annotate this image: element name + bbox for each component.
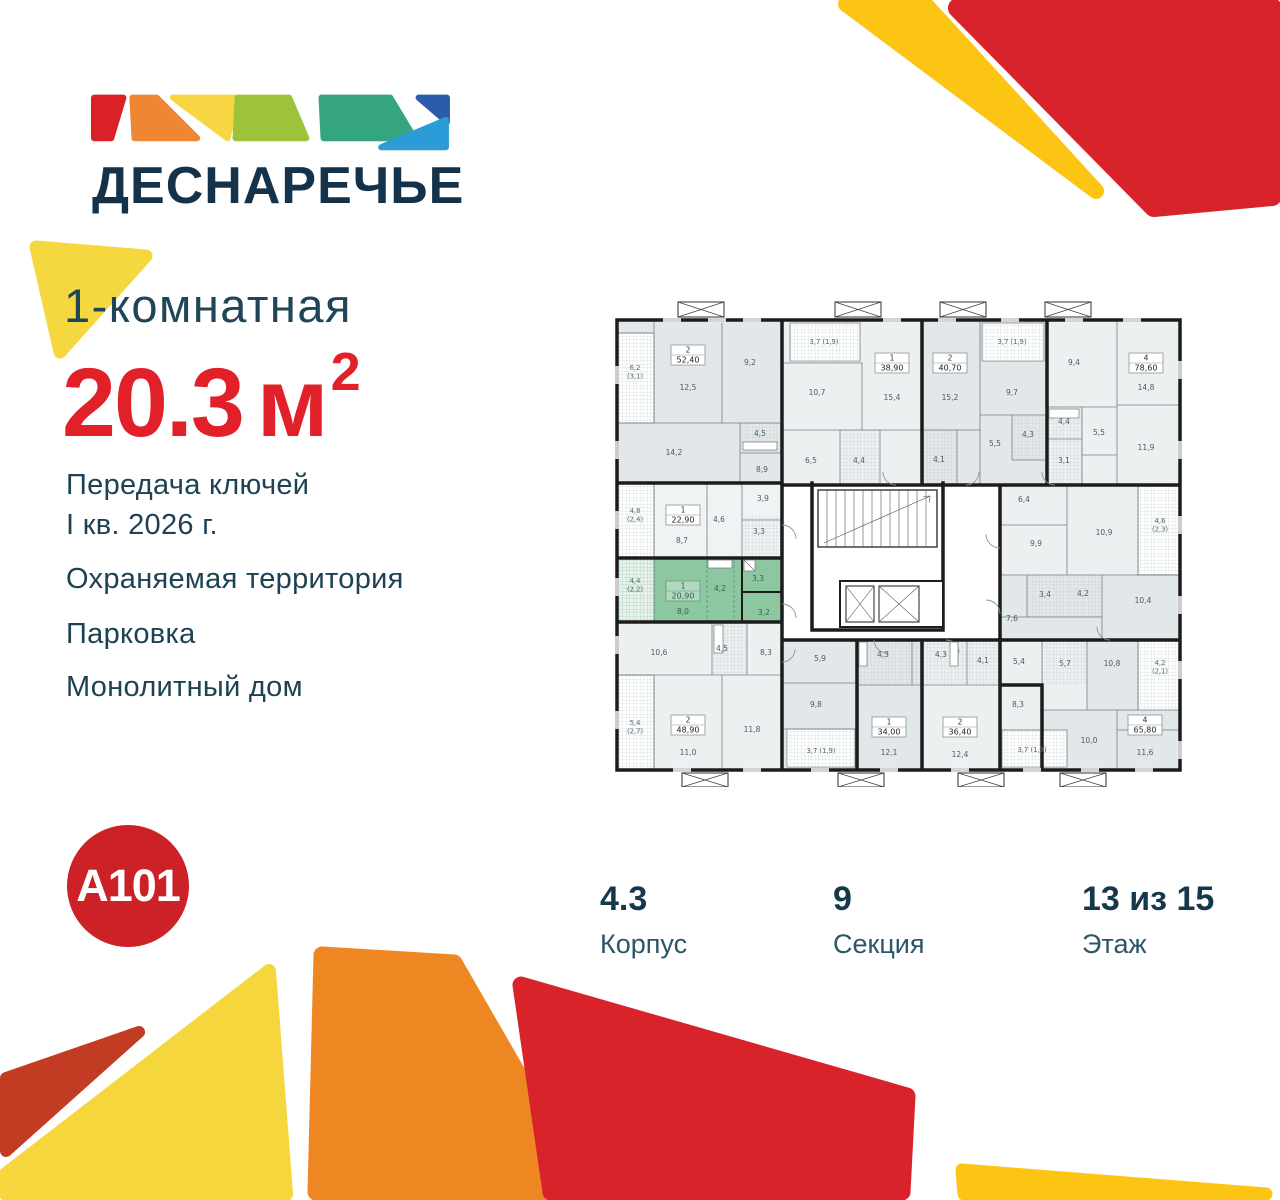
- room-area-label: 4,3: [935, 650, 947, 659]
- room-area-label: 5,5: [1093, 428, 1105, 437]
- section-value: 9: [833, 880, 925, 919]
- room-area-label: 10,8: [1104, 659, 1121, 668]
- room-type-title: 1-комнатная: [64, 278, 352, 333]
- room-area-label: 3,7 (1,9): [1017, 746, 1046, 754]
- apartment-box: 138,90: [875, 353, 909, 373]
- svg-text:1: 1: [681, 582, 686, 591]
- room-area-label: 4,2: [714, 584, 726, 593]
- staircase: [818, 490, 937, 547]
- svg-text:48,90: 48,90: [677, 726, 700, 735]
- svg-text:4: 4: [1143, 716, 1148, 725]
- area-superscript: 2: [331, 342, 361, 402]
- room-area-label: 10,9: [1096, 528, 1113, 537]
- room-area-label: 5,4: [1013, 657, 1025, 666]
- room-area-label: 9,9: [1030, 539, 1042, 548]
- room-area-label: 11,6: [1137, 748, 1154, 757]
- handover-line2: I кв. 2026 г.: [66, 505, 309, 545]
- svg-text:78,60: 78,60: [1135, 364, 1158, 373]
- room-area-label: 8,3: [1012, 700, 1024, 709]
- room-area-label: 3,7 (1,9): [997, 338, 1026, 346]
- room-area-label: 4,3: [877, 650, 889, 659]
- room-area-label: 3,3: [752, 574, 764, 583]
- floor-value: 13 из 15: [1082, 880, 1214, 919]
- svg-text:52,40: 52,40: [677, 356, 700, 365]
- area-unit: м: [257, 348, 329, 457]
- footer-block-section: 9 Секция: [833, 880, 925, 960]
- svg-text:38,90: 38,90: [881, 364, 904, 373]
- svg-text:1: 1: [681, 506, 686, 515]
- area-value: 20.3: [62, 348, 243, 457]
- floor-plan: 252,40138,90240,70478,60122,90120,90248,…: [612, 301, 1185, 787]
- room-area-label: 12,5: [680, 383, 697, 392]
- room-area-label: 4,6: [713, 515, 725, 524]
- room-area-label: 14,8: [1138, 383, 1155, 392]
- room-area-label: 4,3: [1022, 430, 1034, 439]
- room-area-label: 4,5: [716, 644, 728, 653]
- project-logo-name: ДЕСНАРЕЧЬЕ: [92, 156, 464, 216]
- apartment-box: 240,70: [933, 353, 967, 373]
- room-area-label: 5,7: [1059, 659, 1071, 668]
- building-label: Корпус: [600, 929, 687, 960]
- feature-item: Парковка: [66, 618, 196, 651]
- feature-item: Монолитный дом: [66, 671, 303, 704]
- elevators: [840, 581, 943, 627]
- decor-bottom-red-shape: [521, 985, 907, 1192]
- room-area-label: 12,4: [952, 750, 969, 759]
- footer-block-floor: 13 из 15 Этаж: [1082, 880, 1214, 960]
- room-area-label: 10,4: [1135, 596, 1152, 605]
- building-value: 4.3: [600, 880, 687, 919]
- svg-text:2: 2: [686, 716, 691, 725]
- room-area-label: 12,1: [881, 748, 898, 757]
- room-area-label: 7,6: [1006, 614, 1018, 623]
- room-area-label: 9,2: [744, 358, 756, 367]
- room-area-label: 9,4: [1068, 358, 1080, 367]
- room-area-label: 10,6: [651, 648, 668, 657]
- section-label: Секция: [833, 929, 925, 960]
- svg-text:65,80: 65,80: [1134, 726, 1157, 735]
- svg-text:1: 1: [890, 354, 895, 363]
- room-area-label: 8,3: [760, 648, 772, 657]
- room-area-label: 4,4: [1058, 417, 1070, 426]
- svg-text:36,40: 36,40: [949, 728, 972, 737]
- svg-text:4: 4: [1144, 354, 1149, 363]
- room-area-label: 11,8: [744, 725, 761, 734]
- room-area-label: 8,9: [756, 465, 768, 474]
- room-area-label: 3,1: [1058, 456, 1070, 465]
- svg-text:22,90: 22,90: [672, 516, 695, 525]
- apartment-box: 252,40: [671, 345, 705, 365]
- developer-logo-label: A101: [76, 860, 180, 912]
- apartment-box: 248,90: [671, 715, 705, 735]
- room-area-label: 9,8: [810, 700, 822, 709]
- svg-text:1: 1: [887, 718, 892, 727]
- footer-block-building: 4.3 Корпус: [600, 880, 687, 960]
- room-area-label: 8,0: [677, 607, 689, 616]
- room-area-label: 4,2: [1077, 589, 1089, 598]
- svg-text:20,90: 20,90: [672, 592, 695, 601]
- room-area-label: 8,7: [676, 536, 688, 545]
- room-area-label: 5,9: [814, 654, 826, 663]
- svg-text:2: 2: [948, 354, 953, 363]
- svg-text:40,70: 40,70: [939, 364, 962, 373]
- apartment-box: 465,80: [1128, 715, 1162, 735]
- room-area-label: 9,7: [1006, 388, 1018, 397]
- logo-mosaic-icon: [90, 93, 454, 155]
- room-area-label: 11,9: [1138, 443, 1155, 452]
- room-area-label: 10,7: [809, 388, 826, 397]
- room-area-label: 3,9: [757, 494, 769, 503]
- room-area-label: 3,3: [753, 527, 765, 536]
- room-area-label: 4,5: [754, 429, 766, 438]
- floor-label: Этаж: [1082, 929, 1214, 960]
- room-area-label: 11,0: [680, 748, 697, 757]
- highlighted-apartment-box: 120,90: [666, 581, 700, 601]
- area-headline: 20.3м2: [62, 341, 361, 459]
- developer-logo: A101: [67, 825, 189, 947]
- room-area-label: 6,4: [1018, 495, 1030, 504]
- handover-line1: Передача ключей: [66, 465, 309, 505]
- handover-text: Передача ключей I кв. 2026 г.: [66, 465, 309, 545]
- room-area-label: 4,1: [977, 656, 989, 665]
- room-area-label: 4,1: [933, 455, 945, 464]
- apartment-box: 134,00: [872, 717, 906, 737]
- decor-bottom-right-gold-wedge: [962, 1170, 1266, 1194]
- apartment-box: 478,60: [1129, 353, 1163, 373]
- svg-text:2: 2: [958, 718, 963, 727]
- room-area-label: 3,2: [758, 608, 770, 617]
- room-area-label: 3,7 (1,9): [806, 747, 835, 755]
- room-area-label: 4,4: [853, 456, 865, 465]
- room-area-label: 15,2: [942, 393, 959, 402]
- room-area-label: 10,0: [1081, 736, 1098, 745]
- feature-item: Охраняемая территория: [66, 563, 404, 596]
- room-area-label: 15,4: [884, 393, 901, 402]
- room-area-label: 6,5: [805, 456, 817, 465]
- svg-text:2: 2: [686, 346, 691, 355]
- room-area-label: 3,7 (1,9): [809, 338, 838, 346]
- room-area-label: 5,5: [989, 439, 1001, 448]
- svg-text:34,00: 34,00: [878, 728, 901, 737]
- room-area-label: 14,2: [666, 448, 683, 457]
- room-area-label: 3,4: [1039, 590, 1051, 599]
- apartment-box: 236,40: [943, 717, 977, 737]
- apartment-box: 122,90: [666, 505, 700, 525]
